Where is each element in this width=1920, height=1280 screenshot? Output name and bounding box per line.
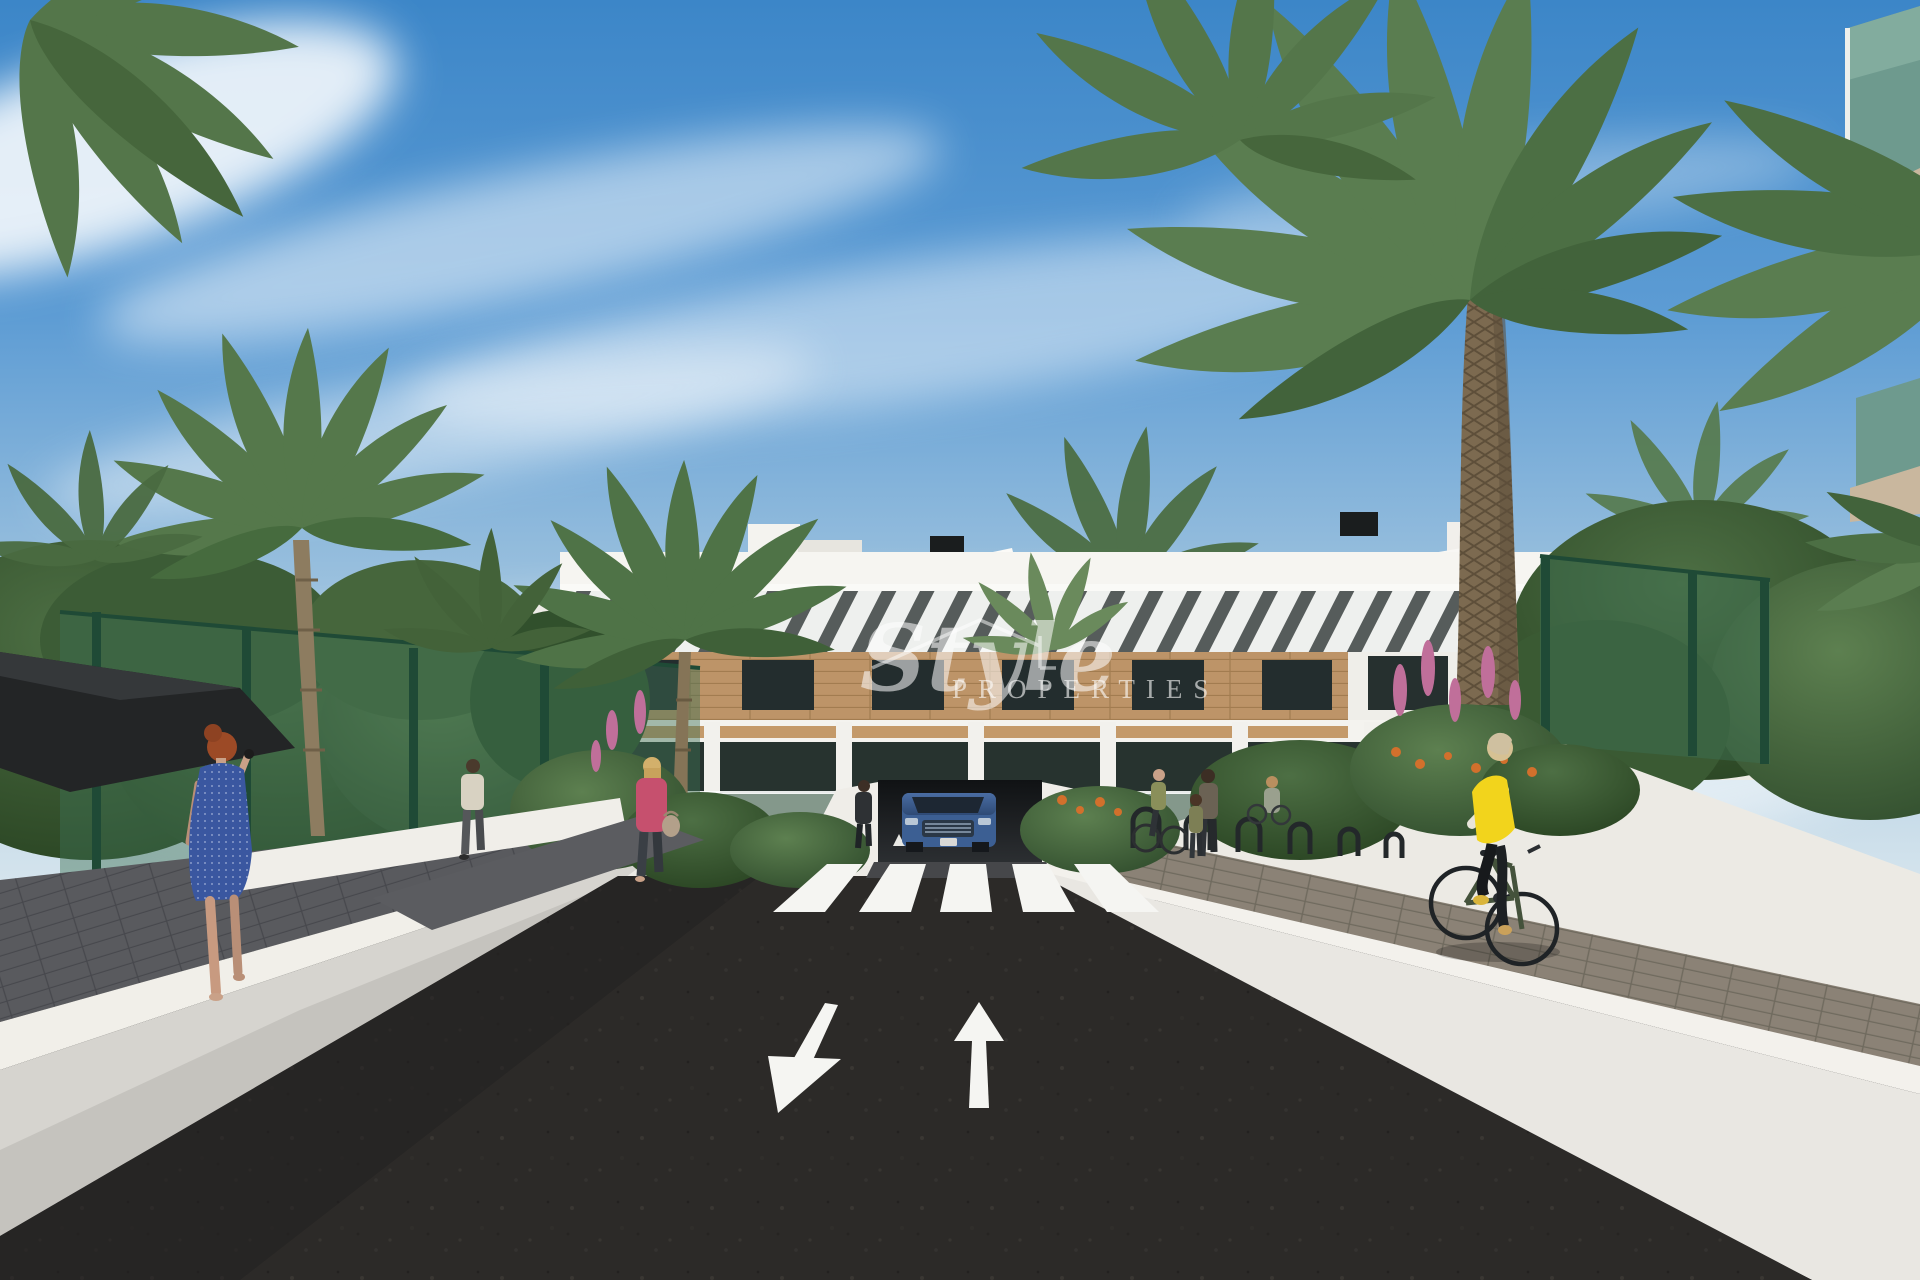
solar-panel xyxy=(1340,512,1378,536)
windshield xyxy=(912,797,984,813)
car xyxy=(902,793,996,852)
right-mesh-fence xyxy=(1540,556,1770,764)
watermark-caps-text: PROPERTIES xyxy=(952,674,1219,704)
handbag xyxy=(662,815,680,837)
phone xyxy=(244,749,254,759)
render-image: Style PROPERTIES xyxy=(0,0,1920,1280)
